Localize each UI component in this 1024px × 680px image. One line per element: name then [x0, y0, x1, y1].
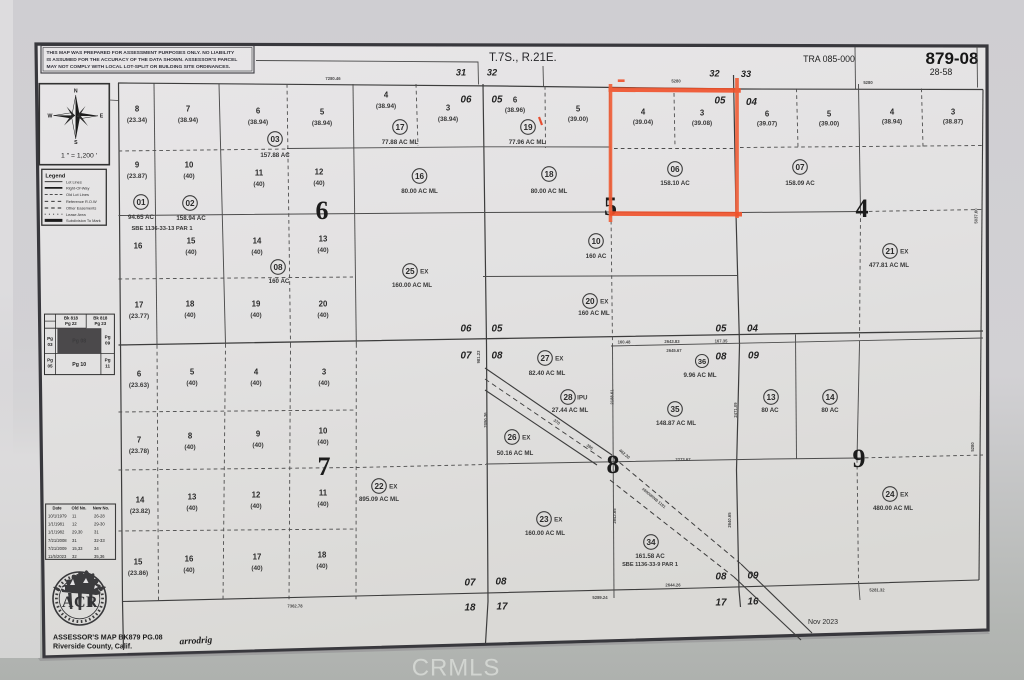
svg-text:981.23: 981.23	[476, 350, 481, 363]
svg-text:EX: EX	[555, 356, 564, 363]
svg-text:01: 01	[136, 198, 146, 207]
svg-text:17: 17	[135, 301, 144, 310]
svg-text:03: 03	[270, 135, 280, 144]
svg-text:08: 08	[716, 351, 727, 362]
svg-text:5289.24: 5289.24	[592, 595, 608, 600]
svg-text:(40): (40)	[318, 380, 329, 387]
svg-text:16: 16	[748, 596, 759, 607]
svg-text:16: 16	[415, 172, 425, 181]
svg-text:15: 15	[134, 558, 143, 567]
svg-text:4: 4	[641, 108, 646, 117]
svg-text:18: 18	[318, 551, 327, 560]
svg-text:(38.94): (38.94)	[248, 119, 268, 126]
svg-text:1/1/1981: 1/1/1981	[48, 522, 65, 527]
svg-text:Pg: Pg	[47, 358, 53, 363]
svg-text:20: 20	[585, 297, 595, 306]
svg-text:29-30: 29-30	[94, 522, 105, 527]
svg-text:2640.65: 2640.65	[727, 512, 732, 528]
svg-text:7: 7	[137, 436, 141, 445]
svg-text:Pg 10: Pg 10	[72, 362, 86, 368]
svg-text:EX: EX	[600, 299, 609, 306]
svg-text:(23.82): (23.82)	[130, 508, 150, 515]
svg-text:EX: EX	[420, 269, 429, 276]
svg-text:33: 33	[741, 69, 751, 79]
svg-text:24: 24	[885, 490, 895, 499]
svg-text:12: 12	[315, 168, 324, 177]
svg-text:17: 17	[716, 597, 727, 608]
svg-text:6: 6	[137, 370, 142, 379]
svg-text:22: 22	[374, 482, 384, 491]
svg-text:Pg: Pg	[105, 335, 111, 340]
svg-text:TRA 085-000: TRA 085-000	[803, 54, 855, 64]
svg-text:(40): (40)	[183, 173, 194, 180]
svg-text:160.00 AC ML: 160.00 AC ML	[525, 530, 565, 537]
svg-text:2645.67: 2645.67	[666, 348, 682, 353]
svg-text:(40): (40)	[251, 565, 262, 572]
svg-text:06: 06	[670, 165, 680, 174]
svg-text:3: 3	[446, 104, 451, 113]
svg-text:Bk 818: Bk 818	[64, 316, 79, 321]
svg-text:4: 4	[890, 108, 895, 117]
svg-text:895.09 AC ML: 895.09 AC ML	[359, 496, 399, 503]
svg-text:5: 5	[576, 105, 581, 114]
svg-text:(40): (40)	[183, 567, 194, 574]
svg-text:(23.63): (23.63)	[129, 382, 149, 389]
svg-text:82.40 AC ML: 82.40 AC ML	[529, 370, 566, 377]
svg-text:20: 20	[319, 300, 328, 309]
svg-text:3: 3	[700, 109, 705, 118]
svg-text:10: 10	[319, 427, 328, 436]
svg-text:SBE 1136-33-13 PAR 1: SBE 1136-33-13 PAR 1	[131, 226, 193, 232]
svg-text:11: 11	[255, 169, 264, 178]
svg-text:MAY NOT COMPLY WITH LOCAL LOT-: MAY NOT COMPLY WITH LOCAL LOT-SPLIT OR B…	[47, 64, 231, 70]
svg-text:80 AC: 80 AC	[761, 407, 779, 414]
svg-text:(39.00): (39.00)	[568, 116, 588, 123]
svg-text:7: 7	[186, 105, 190, 114]
svg-text:08: 08	[492, 350, 503, 361]
svg-text:14: 14	[825, 393, 835, 402]
svg-text:05: 05	[492, 94, 503, 105]
svg-text:9: 9	[135, 161, 140, 170]
svg-text:14: 14	[253, 237, 262, 246]
svg-text:2188.61: 2188.61	[610, 389, 615, 405]
svg-text:New No.: New No.	[93, 506, 110, 511]
svg-text:W: W	[48, 113, 53, 119]
svg-text:EX: EX	[554, 517, 563, 524]
svg-text:158.10 AC: 158.10 AC	[660, 180, 690, 187]
svg-text:Reference R.O.W: Reference R.O.W	[66, 199, 97, 204]
svg-text:32: 32	[487, 67, 498, 77]
svg-text:5: 5	[827, 110, 832, 119]
svg-text:E: E	[100, 114, 104, 120]
svg-text:157.88 AC: 157.88 AC	[260, 152, 290, 159]
svg-text:2644.26: 2644.26	[665, 583, 681, 588]
svg-text:03: 03	[47, 342, 53, 347]
svg-text:16: 16	[134, 242, 143, 251]
svg-text:2273.67: 2273.67	[675, 457, 691, 462]
svg-text:148.87 AC ML: 148.87 AC ML	[656, 420, 696, 427]
svg-text:EX: EX	[389, 484, 398, 491]
svg-text:13: 13	[766, 393, 776, 402]
svg-text:32: 32	[709, 68, 720, 78]
svg-text:17: 17	[497, 601, 508, 612]
svg-text:06: 06	[461, 94, 472, 105]
svg-text:Nov 2023: Nov 2023	[808, 619, 838, 626]
svg-text:23: 23	[539, 515, 549, 524]
svg-text:158.94 AC: 158.94 AC	[176, 215, 206, 222]
svg-text:77.88 AC ML: 77.88 AC ML	[382, 139, 419, 146]
svg-text:31: 31	[94, 530, 99, 535]
svg-text:Lease Area: Lease Area	[66, 212, 87, 217]
svg-text:Pg: Pg	[47, 336, 53, 341]
svg-text:80.00 AC ML: 80.00 AC ML	[531, 188, 568, 195]
svg-text:Riverside County, Calif.: Riverside County, Calif.	[53, 643, 132, 651]
svg-text:11: 11	[105, 364, 110, 369]
svg-text:(40): (40)	[185, 249, 196, 256]
svg-text:5281.32: 5281.32	[869, 588, 885, 593]
svg-text:13: 13	[188, 493, 197, 502]
svg-text:(40): (40)	[252, 442, 263, 449]
svg-text:6: 6	[316, 196, 329, 225]
svg-text:S: S	[74, 140, 78, 146]
svg-text:27: 27	[540, 354, 550, 363]
svg-text:34: 34	[94, 546, 99, 551]
svg-text:12: 12	[72, 522, 77, 527]
svg-text:(23.34): (23.34)	[127, 117, 147, 124]
svg-text:(39.04): (39.04)	[633, 119, 653, 126]
svg-text:(38.94): (38.94)	[178, 117, 198, 124]
svg-text:160 AC ML: 160 AC ML	[578, 310, 610, 317]
svg-text:08: 08	[716, 571, 727, 582]
svg-text:(40): (40)	[253, 181, 264, 188]
svg-text:26: 26	[507, 433, 517, 442]
svg-text:(39.07): (39.07)	[757, 121, 777, 128]
svg-text:50.16 AC ML: 50.16 AC ML	[497, 450, 534, 457]
svg-text:32: 32	[72, 554, 77, 559]
svg-text:160 AC: 160 AC	[269, 278, 290, 285]
svg-text:(40): (40)	[251, 249, 262, 256]
svg-text:167.35: 167.35	[715, 339, 728, 344]
svg-text:16: 16	[185, 555, 194, 564]
svg-text:17: 17	[395, 123, 405, 132]
svg-text:IPU: IPU	[577, 395, 588, 402]
svg-text:(38.94): (38.94)	[882, 119, 902, 126]
svg-text:10: 10	[185, 161, 194, 170]
svg-text:7362.78: 7362.78	[287, 604, 303, 609]
svg-text:SBE 1136-33-9 PAR 1: SBE 1136-33-9 PAR 1	[622, 562, 678, 568]
svg-text:2090.36: 2090.36	[483, 412, 488, 428]
svg-text:(40): (40)	[186, 505, 197, 512]
svg-text:5280: 5280	[863, 80, 873, 85]
svg-text:7/21/2008: 7/21/2008	[48, 538, 67, 543]
svg-text:9: 9	[853, 444, 866, 473]
svg-text:18: 18	[186, 300, 195, 309]
svg-text:27.44 AC ML: 27.44 AC ML	[552, 407, 589, 414]
svg-text:09: 09	[105, 341, 111, 346]
svg-text:6: 6	[765, 110, 770, 119]
svg-text:6: 6	[256, 107, 261, 116]
svg-text:8: 8	[135, 105, 140, 114]
svg-text:14: 14	[136, 496, 145, 505]
svg-text:T.7S., R.21E.: T.7S., R.21E.	[489, 52, 557, 64]
svg-text:(23.87): (23.87)	[127, 173, 147, 180]
svg-text:(39.00): (39.00)	[819, 121, 839, 128]
svg-text:36: 36	[698, 357, 706, 366]
svg-text:161.58 AC: 161.58 AC	[635, 553, 665, 560]
svg-text:5037.60: 5037.60	[974, 208, 979, 224]
svg-text:(39.08): (39.08)	[692, 120, 712, 127]
svg-text:34: 34	[646, 538, 656, 547]
svg-text:4: 4	[254, 368, 259, 377]
svg-text:480.00 AC ML: 480.00 AC ML	[873, 505, 913, 512]
svg-text:05: 05	[715, 95, 726, 106]
svg-text:Lot Lines: Lot Lines	[66, 179, 82, 184]
svg-text:5: 5	[190, 368, 195, 377]
svg-text:35,36: 35,36	[94, 554, 105, 559]
svg-text:13: 13	[319, 235, 328, 244]
svg-text:ACR: ACR	[62, 594, 98, 611]
svg-text:Pg 23: Pg 23	[94, 321, 106, 326]
svg-text:4: 4	[856, 194, 869, 223]
svg-text:31: 31	[72, 538, 77, 543]
svg-text:(40): (40)	[316, 563, 327, 570]
svg-text:Right-Of-Way: Right-Of-Way	[66, 186, 89, 191]
svg-text:05: 05	[716, 323, 727, 334]
svg-text:17: 17	[253, 553, 262, 562]
svg-text:09: 09	[748, 350, 759, 361]
svg-text:(38.94): (38.94)	[376, 103, 396, 110]
svg-text:15,33: 15,33	[72, 546, 83, 551]
svg-text:(40): (40)	[184, 312, 195, 319]
svg-text:31: 31	[456, 67, 466, 77]
svg-text:7280.46: 7280.46	[325, 76, 341, 81]
svg-text:Subdivision To Mark: Subdivision To Mark	[66, 218, 101, 223]
svg-text:5280: 5280	[970, 442, 975, 452]
svg-text:11: 11	[319, 489, 328, 498]
svg-text:35: 35	[670, 405, 680, 414]
svg-text:26-28: 26-28	[94, 514, 105, 519]
svg-text:05: 05	[47, 364, 53, 369]
svg-text:18: 18	[544, 170, 554, 179]
svg-text:arrodrig: arrodrig	[179, 636, 212, 648]
svg-text:07: 07	[465, 577, 476, 588]
svg-text:ASSESSOR'S MAP BK879 PG.08: ASSESSOR'S MAP BK879 PG.08	[53, 634, 163, 642]
svg-text:(38.96): (38.96)	[505, 107, 525, 114]
svg-text:(40): (40)	[317, 247, 328, 254]
svg-text:(38.87): (38.87)	[943, 119, 963, 126]
svg-text:4: 4	[384, 91, 389, 100]
svg-text:77.96 AC ML: 77.96 AC ML	[509, 139, 546, 146]
svg-text:1 ″ = 1,200 ′: 1 ″ = 1,200 ′	[61, 153, 98, 160]
svg-text:28-58: 28-58	[930, 67, 953, 77]
svg-text:3: 3	[951, 108, 956, 117]
svg-text:9: 9	[256, 430, 261, 439]
svg-text:3: 3	[322, 368, 327, 377]
svg-text:(40): (40)	[317, 312, 328, 319]
svg-text:EX: EX	[522, 435, 531, 442]
svg-text:(40): (40)	[317, 439, 328, 446]
svg-text:15: 15	[187, 237, 196, 246]
svg-text:12: 12	[252, 491, 261, 500]
svg-text:5280: 5280	[671, 79, 681, 84]
svg-text:04: 04	[747, 323, 758, 334]
svg-text:21: 21	[885, 247, 895, 256]
svg-text:(38.94): (38.94)	[312, 120, 332, 127]
svg-text:5: 5	[320, 108, 325, 117]
svg-text:CRMLS: CRMLS	[412, 655, 501, 680]
svg-text:(40): (40)	[317, 501, 328, 508]
svg-text:02: 02	[185, 199, 195, 208]
svg-text:07: 07	[795, 163, 805, 172]
svg-text:Pg 22: Pg 22	[65, 321, 77, 326]
svg-text:11: 11	[72, 514, 77, 519]
svg-text:09: 09	[748, 570, 759, 581]
svg-text:EX: EX	[900, 492, 909, 499]
svg-text:08: 08	[496, 576, 507, 587]
svg-text:Pg: Pg	[105, 358, 111, 363]
svg-text:2643.83: 2643.83	[664, 339, 680, 344]
svg-text:04: 04	[746, 97, 757, 108]
svg-text:8: 8	[607, 450, 620, 479]
svg-text:06: 06	[461, 323, 472, 334]
svg-text:18: 18	[465, 602, 476, 613]
svg-text:80 AC: 80 AC	[821, 407, 839, 414]
svg-text:IS ASSUMED FOR THE ACCURACY OF: IS ASSUMED FOR THE ACCURACY OF THE DATA …	[47, 57, 238, 63]
svg-text:879-08: 879-08	[926, 49, 979, 68]
svg-text:(40): (40)	[250, 503, 261, 510]
svg-text:(23.78): (23.78)	[129, 448, 149, 455]
svg-text:11/5/2023: 11/5/2023	[48, 554, 67, 559]
svg-text:08: 08	[273, 263, 283, 272]
svg-text:19: 19	[523, 123, 533, 132]
svg-text:Old No.: Old No.	[72, 506, 87, 511]
svg-text:1/1/1982: 1/1/1982	[48, 530, 65, 535]
svg-text:(40): (40)	[250, 380, 261, 387]
svg-text:THIS MAP WAS PREPARED FOR ASSE: THIS MAP WAS PREPARED FOR ASSESSMENT PUR…	[47, 50, 236, 56]
svg-text:EX: EX	[900, 249, 909, 256]
svg-text:Legend: Legend	[45, 174, 65, 180]
svg-text:Old Lot Lines: Old Lot Lines	[66, 192, 89, 197]
svg-text:32-33: 32-33	[94, 538, 105, 543]
svg-text:05: 05	[492, 323, 503, 334]
svg-text:Bk 818: Bk 818	[93, 316, 108, 321]
svg-text:160.48: 160.48	[618, 340, 631, 345]
svg-text:19: 19	[252, 300, 261, 309]
svg-text:(23.77): (23.77)	[129, 313, 149, 320]
svg-text:8: 8	[188, 432, 193, 441]
svg-text:6: 6	[513, 96, 518, 105]
svg-text:07: 07	[461, 350, 472, 361]
svg-text:477.81 AC ML: 477.81 AC ML	[869, 262, 909, 269]
svg-text:2471.09: 2471.09	[733, 402, 738, 418]
svg-text:29,30: 29,30	[72, 530, 83, 535]
svg-text:80.00 AC ML: 80.00 AC ML	[401, 188, 438, 195]
svg-text:7/21/2009: 7/21/2009	[48, 546, 67, 551]
svg-text:(40): (40)	[250, 312, 261, 319]
svg-text:28: 28	[563, 393, 573, 402]
svg-text:94.65 AC: 94.65 AC	[128, 214, 154, 221]
svg-text:Pg 08: Pg 08	[72, 339, 86, 345]
svg-text:(40): (40)	[313, 180, 324, 187]
svg-text:160.00 AC ML: 160.00 AC ML	[392, 282, 432, 289]
svg-text:(23.86): (23.86)	[128, 570, 148, 577]
svg-text:10: 10	[591, 237, 601, 246]
svg-text:N: N	[74, 89, 78, 95]
svg-text:(40): (40)	[184, 444, 195, 451]
svg-text:10/1/1979: 10/1/1979	[48, 514, 67, 519]
svg-text:(40): (40)	[186, 380, 197, 387]
svg-text:2643.65: 2643.65	[612, 508, 617, 524]
svg-text:7: 7	[318, 452, 331, 481]
svg-text:Date: Date	[52, 506, 62, 511]
svg-text:160 AC: 160 AC	[586, 253, 607, 260]
svg-text:158.09 AC: 158.09 AC	[785, 180, 815, 187]
svg-text:Other Easements: Other Easements	[66, 206, 96, 211]
svg-text:(38.94): (38.94)	[438, 116, 458, 123]
svg-text:9.96 AC ML: 9.96 AC ML	[683, 372, 716, 379]
svg-text:25: 25	[405, 267, 415, 276]
